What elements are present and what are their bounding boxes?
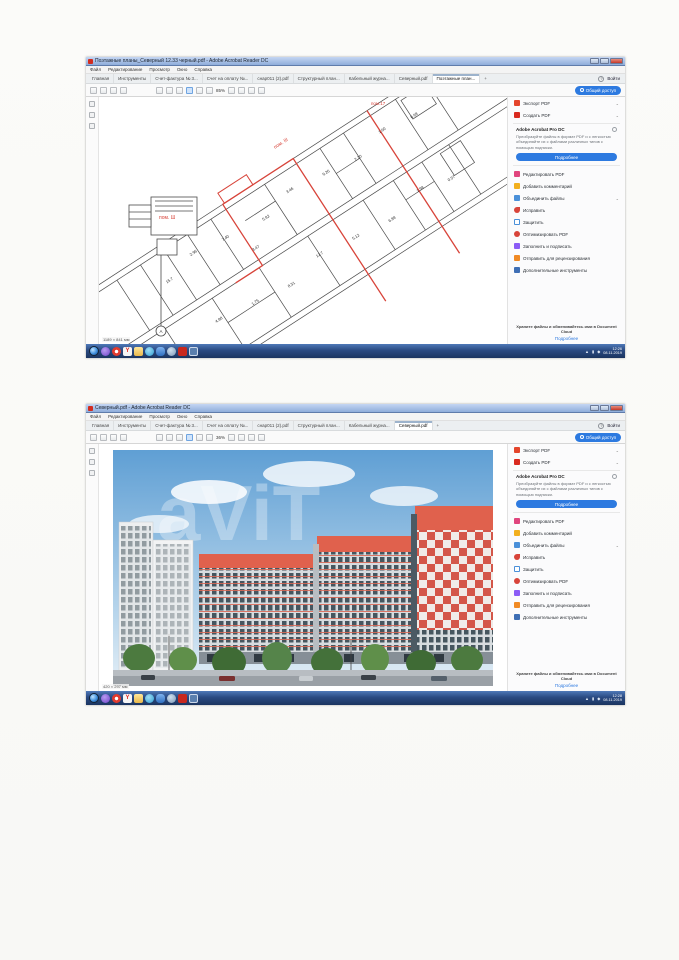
document-cloud-learn-more-link[interactable]: Подробнее	[516, 683, 617, 688]
tab-document-active[interactable]: Северный.pdf	[395, 421, 433, 430]
tool-optimize-pdf[interactable]: Оптимизировать PDF	[508, 228, 625, 240]
tool-label: Защитить	[523, 220, 543, 225]
select-tool-icon[interactable]	[176, 87, 183, 94]
menu-help[interactable]: Справка	[194, 67, 212, 72]
menu-view[interactable]: Просмотр	[149, 414, 170, 419]
tool-label: Добавить комментарий	[523, 531, 572, 536]
acrobat-window-render: Северный.pdf - Adobe Acrobat Reader DC Ф…	[86, 404, 625, 705]
tool-label: Исправить	[523, 208, 545, 213]
print-icon[interactable]	[100, 87, 107, 94]
more-tools-icon	[514, 267, 520, 273]
tab-document-4[interactable]: Структурный план...	[294, 421, 345, 430]
create-pdf-icon	[514, 112, 520, 118]
search-icon[interactable]	[120, 434, 127, 441]
toolbar: 36% Общий доступ	[86, 431, 625, 444]
tool-edit-pdf[interactable]: Редактировать PDF	[508, 168, 625, 180]
tool-label: Оптимизировать PDF	[523, 232, 568, 237]
email-icon[interactable]	[110, 87, 117, 94]
document-cloud-note: Храните файлы и обменивайтесь ими в Docu…	[516, 671, 617, 681]
zoom-level-dropdown[interactable]: 85%	[216, 88, 225, 93]
menu-file[interactable]: Файл	[90, 67, 101, 72]
tool-label: Экспорт PDF	[523, 448, 550, 453]
skype-icon[interactable]	[145, 347, 154, 356]
tool-label: Редактировать PDF	[523, 172, 564, 177]
opera-browser-icon[interactable]	[112, 694, 121, 703]
comment-icon	[514, 530, 520, 536]
title-bar[interactable]: Поэтажные планы_Северный 12.33 черный.pd…	[86, 57, 625, 66]
tool-optimize-pdf[interactable]: Оптимизировать PDF	[508, 575, 625, 587]
section-mark-label: А	[159, 329, 162, 334]
minimize-button[interactable]	[590, 405, 599, 411]
document-cloud-note: Храните файлы и обменивайтесь ими в Docu…	[516, 324, 617, 334]
new-tab-button[interactable]: +	[433, 421, 444, 430]
tab-home[interactable]: Главная	[88, 74, 114, 83]
tool-label: Создать PDF	[523, 460, 550, 465]
maximize-button[interactable]	[600, 405, 609, 411]
tool-more-tools[interactable]: Дополнительные инструменты	[508, 264, 625, 276]
page-down-icon[interactable]	[166, 87, 173, 94]
window-title: Северный.pdf - Adobe Acrobat Reader DC	[95, 405, 588, 411]
send-review-icon	[514, 255, 520, 261]
page-size-indicator: 1189 × 841 мм	[102, 337, 130, 342]
tool-label: Объединить файлы	[523, 543, 565, 548]
tool-label: Добавить комментарий	[523, 184, 572, 189]
hidden-icons-arrow[interactable]: ▲	[585, 696, 589, 701]
select-tool-icon[interactable]	[176, 434, 183, 441]
taskbar-clock[interactable]: 12:26 08.11.2019	[603, 347, 622, 356]
clock-date: 08.11.2019	[603, 351, 622, 355]
search-icon[interactable]	[120, 87, 127, 94]
tool-combine-files[interactable]: Объединить файлы⌄	[508, 539, 625, 551]
optimize-pdf-icon	[514, 231, 520, 237]
bookmarks-panel-icon[interactable]	[89, 459, 95, 465]
chevron-down-icon[interactable]: ⌄	[616, 543, 619, 548]
taskbar-app-purple-icon[interactable]	[101, 347, 110, 356]
skype-icon[interactable]	[145, 694, 154, 703]
chevron-down-icon[interactable]: ⌄	[616, 460, 619, 465]
share-button-label: Общий доступ	[586, 88, 616, 93]
tool-send-for-review[interactable]: Отправить для рецензирования	[508, 252, 625, 264]
tool-send-for-review[interactable]: Отправить для рецензирования	[508, 599, 625, 611]
fill-sign-icon	[514, 590, 520, 596]
fit-width-icon[interactable]	[238, 434, 245, 441]
attachments-panel-icon[interactable]	[89, 470, 95, 476]
tool-fix[interactable]: Исправить	[508, 551, 625, 563]
acrobat-window-floorplan: Поэтажные планы_Северный 12.33 черный.pd…	[86, 57, 625, 358]
yandex-browser-icon[interactable]	[123, 347, 132, 356]
share-button[interactable]: Общий доступ	[575, 86, 621, 95]
page-up-icon[interactable]	[156, 87, 163, 94]
zoom-level-dropdown[interactable]: 36%	[216, 435, 225, 440]
save-icon[interactable]	[90, 434, 97, 441]
tab-document-1[interactable]: Счет-фактура № 3...	[151, 421, 203, 430]
share-button[interactable]: Общий доступ	[575, 433, 621, 442]
fit-page-icon[interactable]	[228, 434, 235, 441]
tab-home[interactable]: Главная	[88, 421, 114, 430]
shield-icon	[514, 219, 520, 225]
menu-window[interactable]: Окно	[177, 67, 187, 72]
tab-document-2[interactable]: Счет на оплату №...	[203, 74, 254, 83]
menu-bar: Файл Редактирование Просмотр Окно Справк…	[86, 66, 625, 74]
tool-combine-files[interactable]: Объединить файлы⌄	[508, 192, 625, 204]
panel-search-icon[interactable]	[612, 127, 617, 132]
close-button[interactable]	[610, 405, 623, 411]
menu-window[interactable]: Окно	[177, 414, 187, 419]
tab-document-4[interactable]: Структурный план...	[294, 74, 345, 83]
tool-fill-sign[interactable]: Заполнить и подписать	[508, 240, 625, 252]
bookmarks-panel-icon[interactable]	[89, 112, 95, 118]
explorer-folder-icon[interactable]	[134, 347, 143, 356]
tool-label: Исправить	[523, 555, 545, 560]
tab-tools[interactable]: Инструменты	[114, 74, 151, 83]
document-canvas-floorplan[interactable]: 15.7 2.96 7.40 5.82 3.46 9.26 2.20 1.60 …	[99, 97, 507, 344]
thumbnails-panel-icon[interactable]	[89, 101, 95, 107]
email-icon[interactable]	[110, 434, 117, 441]
export-pdf-icon	[514, 447, 520, 453]
cloud-app-icon[interactable]	[156, 347, 165, 356]
menu-file[interactable]: Файл	[90, 414, 101, 419]
print-icon[interactable]	[100, 434, 107, 441]
tool-protect[interactable]: Защитить	[508, 563, 625, 575]
tools-panel: Экспорт PDF ⌄ Создать PDF ⌄ Adobe Acroba…	[507, 444, 625, 691]
tool-label: Дополнительные инструменты	[523, 615, 587, 620]
page-up-icon[interactable]	[156, 434, 163, 441]
internet-globe-icon[interactable]	[167, 694, 176, 703]
tool-export-pdf[interactable]: Экспорт PDF ⌄	[508, 97, 625, 109]
promo-learn-more-button[interactable]: Подробнее	[516, 153, 617, 161]
tool-fill-sign[interactable]: Заполнить и подписать	[508, 587, 625, 599]
floor-plan-drawing: 15.7 2.96 7.40 5.82 3.46 9.26 2.20 1.60 …	[99, 97, 507, 344]
tab-bar: Главная Инструменты Счет-фактура № 3... …	[86, 421, 625, 431]
help-icon[interactable]: ?	[598, 76, 604, 82]
tool-label: Оптимизировать PDF	[523, 579, 568, 584]
tool-create-pdf[interactable]: Создать PDF ⌄	[508, 456, 625, 468]
maximize-button[interactable]	[600, 58, 609, 64]
tool-protect[interactable]: Защитить	[508, 216, 625, 228]
tab-tools[interactable]: Инструменты	[114, 421, 151, 430]
share-button-label: Общий доступ	[586, 435, 616, 440]
start-button[interactable]	[89, 693, 99, 703]
thumbnails-panel-icon[interactable]	[89, 448, 95, 454]
fix-pen-icon	[514, 207, 520, 213]
tool-label: Редактировать PDF	[523, 519, 564, 524]
export-pdf-icon	[514, 100, 520, 106]
hand-tool-icon[interactable]	[186, 434, 193, 441]
photo-viewer-icon[interactable]	[189, 694, 198, 703]
yandex-browser-icon[interactable]	[123, 694, 132, 703]
page-size-indicator: 420 × 297 мм	[102, 684, 129, 689]
promo-learn-more-button[interactable]: Подробнее	[516, 500, 617, 508]
building-render-image: aViT	[99, 444, 507, 691]
zoom-in-icon[interactable]	[206, 434, 213, 441]
comment-icon[interactable]	[248, 87, 255, 94]
scanned-page: Поэтажные планы_Северный 12.33 черный.pd…	[0, 0, 679, 960]
close-button[interactable]	[610, 58, 623, 64]
navigation-pane	[86, 444, 99, 691]
windows-taskbar: ▲ ▮ ◆ 12:26 08.11.2019	[86, 344, 625, 358]
menu-edit[interactable]: Редактирование	[108, 67, 142, 72]
tool-label: Дополнительные инструменты	[523, 268, 587, 273]
tool-label: Отправить для рецензирования	[523, 256, 590, 261]
clock-date: 08.11.2019	[603, 698, 622, 702]
tab-document-5[interactable]: Кабельный журна...	[345, 74, 395, 83]
sign-in-button[interactable]: Войти	[607, 423, 620, 428]
hand-tool-icon[interactable]	[186, 87, 193, 94]
promo-title: Adobe Acrobat Pro DC	[516, 127, 565, 132]
acrobat-taskbar-icon[interactable]	[178, 347, 187, 356]
hidden-icons-arrow[interactable]: ▲	[585, 349, 589, 354]
help-icon[interactable]: ?	[598, 423, 604, 429]
acrobat-pro-promo: Adobe Acrobat Pro DC Преобразуйте файлы …	[513, 470, 620, 513]
create-pdf-icon	[514, 459, 520, 465]
chevron-down-icon[interactable]: ⌄	[616, 113, 619, 118]
tool-label: Экспорт PDF	[523, 101, 550, 106]
tab-document-3[interactable]: снар011 (2).pdf	[253, 421, 293, 430]
edit-pdf-icon	[514, 171, 520, 177]
menu-help[interactable]: Справка	[194, 414, 212, 419]
menu-bar: Файл Редактирование Просмотр Окно Справк…	[86, 413, 625, 421]
share-icon	[580, 88, 584, 92]
promo-text: Преобразуйте файлы в формат PDF и с легк…	[516, 134, 617, 150]
optimize-pdf-icon	[514, 578, 520, 584]
menu-view[interactable]: Просмотр	[149, 67, 170, 72]
sign-pen-icon[interactable]	[258, 434, 265, 441]
acrobat-app-icon	[88, 59, 93, 64]
chevron-down-icon[interactable]: ⌄	[616, 448, 619, 453]
tool-label: Защитить	[523, 567, 543, 572]
volume-tray-icon[interactable]: ◆	[597, 349, 600, 354]
network-tray-icon[interactable]: ▮	[592, 696, 594, 701]
document-cloud-learn-more-link[interactable]: Подробнее	[516, 336, 617, 341]
tool-edit-pdf[interactable]: Редактировать PDF	[508, 515, 625, 527]
taskbar-app-purple-icon[interactable]	[101, 694, 110, 703]
tab-document-1[interactable]: Счет-фактура № 3...	[151, 74, 203, 83]
title-bar[interactable]: Северный.pdf - Adobe Acrobat Reader DC	[86, 404, 625, 413]
tool-label: Создать PDF	[523, 113, 550, 118]
comment-icon	[514, 183, 520, 189]
acrobat-pro-promo: Adobe Acrobat Pro DC Преобразуйте файлы …	[513, 123, 620, 166]
promo-text: Преобразуйте файлы в формат PDF и с легк…	[516, 481, 617, 497]
plan-room-label-b: пом. Ш	[159, 215, 176, 221]
acrobat-app-icon	[88, 406, 93, 411]
fill-sign-icon	[514, 243, 520, 249]
photo-viewer-icon[interactable]	[189, 347, 198, 356]
window-title: Поэтажные планы_Северный 12.33 черный.pd…	[95, 58, 588, 64]
tool-label: Заполнить и подписать	[523, 244, 572, 249]
combine-files-icon	[514, 195, 520, 201]
network-tray-icon[interactable]: ▮	[592, 349, 594, 354]
combine-files-icon	[514, 542, 520, 548]
tool-label: Заполнить и подписать	[523, 591, 572, 596]
windows-taskbar: ▲ ▮ ◆ 12:28 08.11.2019	[86, 691, 625, 705]
acrobat-taskbar-icon[interactable]	[178, 694, 187, 703]
share-icon	[580, 435, 584, 439]
save-icon[interactable]	[90, 87, 97, 94]
zoom-out-icon[interactable]	[196, 87, 203, 94]
zoom-out-icon[interactable]	[196, 434, 203, 441]
comment-icon[interactable]	[248, 434, 255, 441]
fit-page-icon[interactable]	[228, 87, 235, 94]
cloud-app-icon[interactable]	[156, 694, 165, 703]
chevron-down-icon[interactable]: ⌄	[616, 196, 619, 201]
tool-more-tools[interactable]: Дополнительные инструменты	[508, 611, 625, 623]
tab-bar: Главная Инструменты Счет-фактура № 3... …	[86, 74, 625, 84]
attachments-panel-icon[interactable]	[89, 123, 95, 129]
explorer-folder-icon[interactable]	[134, 694, 143, 703]
more-tools-icon	[514, 614, 520, 620]
tool-label: Отправить для рецензирования	[523, 603, 590, 608]
navigation-pane	[86, 97, 99, 344]
tool-add-comment[interactable]: Добавить комментарий	[508, 527, 625, 539]
minimize-button[interactable]	[590, 58, 599, 64]
tool-export-pdf[interactable]: Экспорт PDF ⌄	[508, 444, 625, 456]
promo-title: Adobe Acrobat Pro DC	[516, 474, 565, 479]
fit-width-icon[interactable]	[238, 87, 245, 94]
start-button[interactable]	[89, 346, 99, 356]
tab-document-6[interactable]: Северный.pdf	[395, 74, 433, 83]
chevron-down-icon[interactable]: ⌄	[616, 101, 619, 106]
plan-red-label-top: пом.17	[371, 101, 386, 106]
menu-edit[interactable]: Редактирование	[108, 414, 142, 419]
tab-document-active[interactable]: Поэтажные план...	[433, 74, 481, 83]
sign-pen-icon[interactable]	[258, 87, 265, 94]
tool-create-pdf[interactable]: Создать PDF ⌄	[508, 109, 625, 121]
panel-search-icon[interactable]	[612, 474, 617, 479]
toolbar: 85% Общий доступ	[86, 84, 625, 97]
internet-globe-icon[interactable]	[167, 347, 176, 356]
tab-document-2[interactable]: Счет на оплату №...	[203, 421, 254, 430]
send-review-icon	[514, 602, 520, 608]
tab-document-3[interactable]: снар011 (2).pdf	[253, 74, 293, 83]
opera-browser-icon[interactable]	[112, 347, 121, 356]
sign-in-button[interactable]: Войти	[607, 76, 620, 81]
tab-document-5[interactable]: Кабельный журна...	[345, 421, 395, 430]
tools-panel: Экспорт PDF ⌄ Создать PDF ⌄ Adobe Acroba…	[507, 97, 625, 344]
fix-pen-icon	[514, 554, 520, 560]
tool-label: Объединить файлы	[523, 196, 565, 201]
tool-add-comment[interactable]: Добавить комментарий	[508, 180, 625, 192]
zoom-in-icon[interactable]	[206, 87, 213, 94]
taskbar-clock[interactable]: 12:28 08.11.2019	[603, 694, 622, 703]
document-canvas-render[interactable]: aViT	[99, 444, 507, 691]
volume-tray-icon[interactable]: ◆	[597, 696, 600, 701]
page-down-icon[interactable]	[166, 434, 173, 441]
shield-icon	[514, 566, 520, 572]
tool-fix[interactable]: Исправить	[508, 204, 625, 216]
edit-pdf-icon	[514, 518, 520, 524]
new-tab-button[interactable]: +	[480, 74, 491, 83]
